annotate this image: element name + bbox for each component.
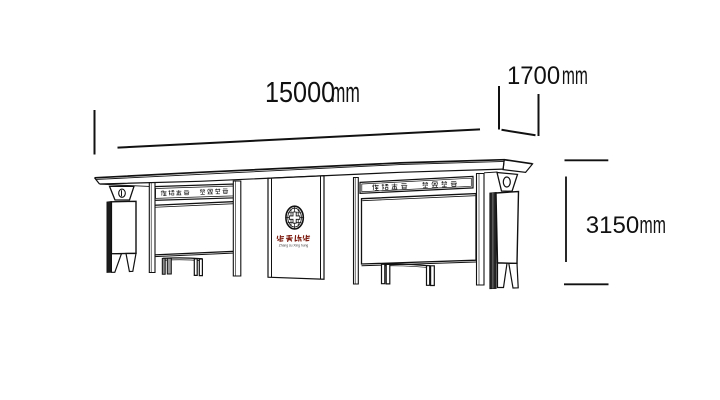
svg-text:1700: 1700 <box>507 63 560 91</box>
svg-text:Zhang su Xing hung: Zhang su Xing hung <box>279 244 309 248</box>
svg-text:3150: 3150 <box>586 212 639 239</box>
svg-text:mm: mm <box>640 213 666 239</box>
svg-text:mm: mm <box>562 62 588 90</box>
svg-text:mm: mm <box>331 77 360 110</box>
svg-text:15000: 15000 <box>265 75 335 108</box>
